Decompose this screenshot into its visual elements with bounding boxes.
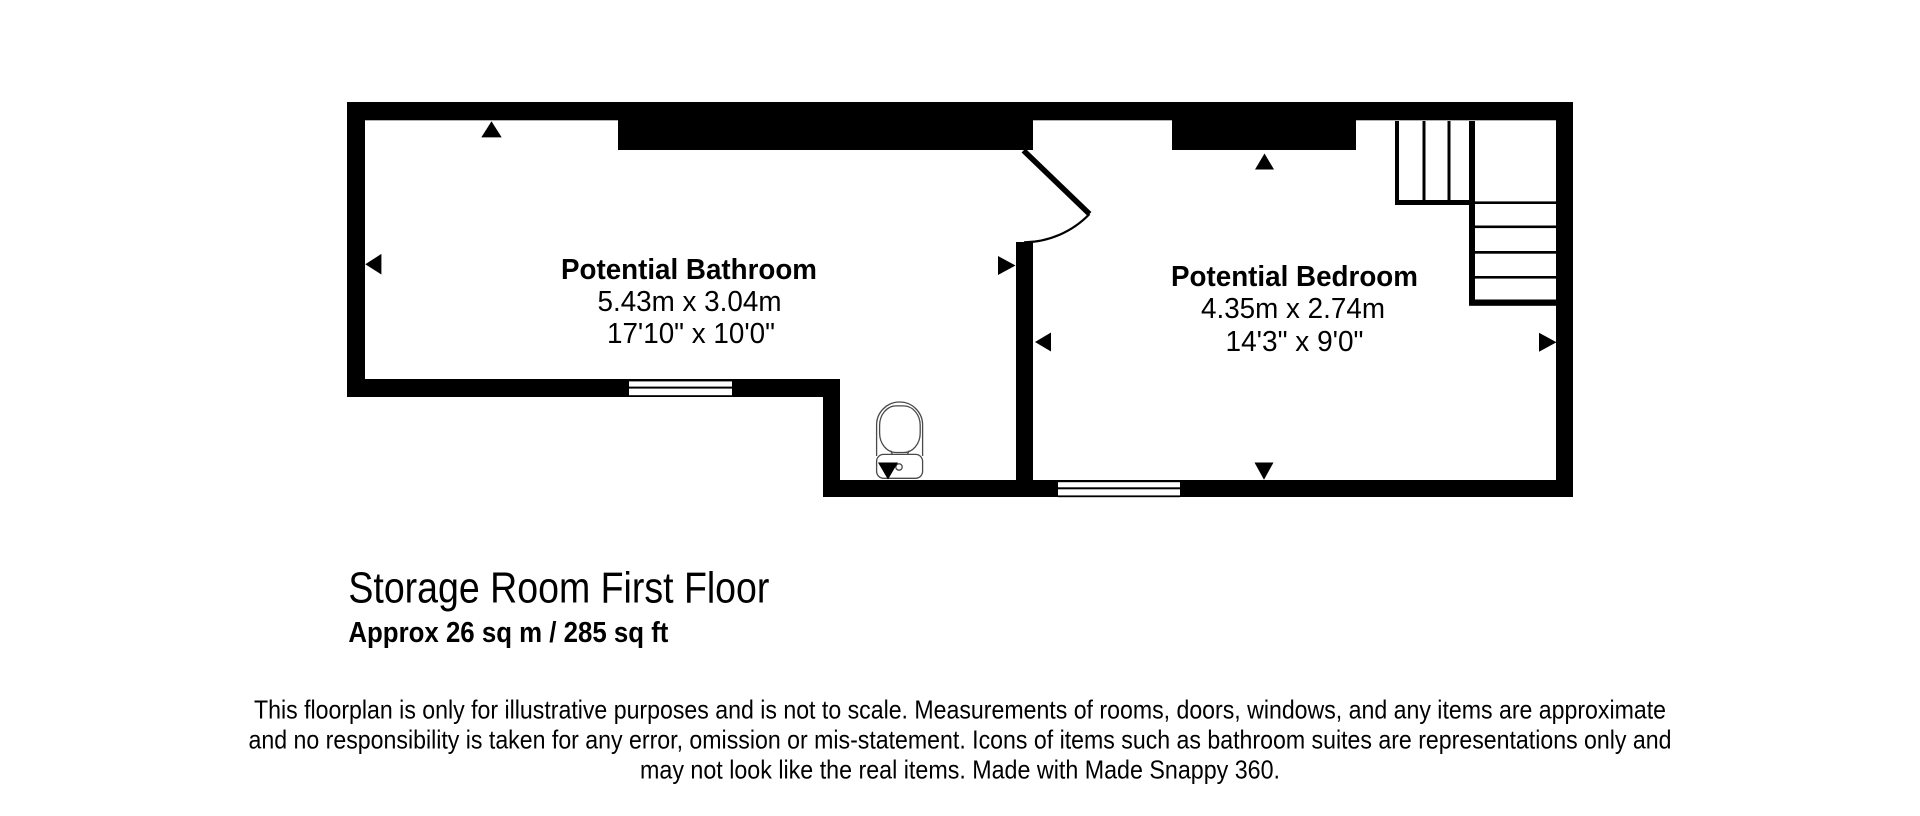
svg-text:Potential Bedroom: Potential Bedroom (1171, 261, 1418, 293)
svg-text:5.43m x 3.04m: 5.43m x 3.04m (598, 286, 782, 318)
svg-text:Storage Room First Floor: Storage Room First Floor (348, 564, 769, 613)
svg-text:and no responsibility is taken: and no responsibility is taken for any e… (249, 724, 1672, 754)
svg-text:Approx 26 sq m / 285 sq ft: Approx 26 sq m / 285 sq ft (348, 617, 668, 649)
svg-text:14'3" x 9'0": 14'3" x 9'0" (1226, 326, 1364, 358)
svg-text:17'10" x 10'0": 17'10" x 10'0" (607, 318, 775, 350)
svg-text:Potential Bathroom: Potential Bathroom (561, 254, 817, 286)
svg-text:This floorplan is only for ill: This floorplan is only for illustrative … (254, 694, 1666, 724)
svg-text:may not look like the real ite: may not look like the real items. Made w… (640, 754, 1280, 784)
svg-text:4.35m x 2.74m: 4.35m x 2.74m (1201, 293, 1385, 325)
